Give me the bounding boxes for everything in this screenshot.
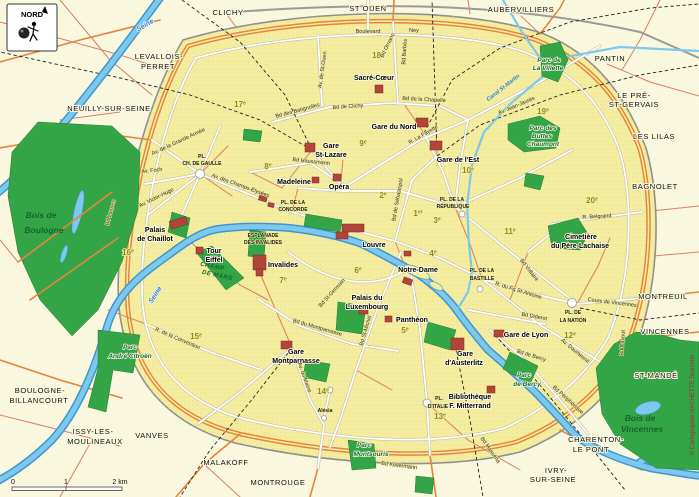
suburb-label-vincennes: VINCENNES xyxy=(640,327,689,336)
street-ney: Ney xyxy=(409,28,419,34)
label-villette-1: Parc de xyxy=(537,57,561,64)
scale-tick-0: 0 xyxy=(11,479,15,486)
label-bois-vincennes-1: Bois de xyxy=(625,413,656,423)
label-buttes-2: Buttes xyxy=(532,133,553,140)
label-st-lazare-1: Gare xyxy=(323,143,339,150)
parc-kellermann xyxy=(415,476,434,494)
label-opera: Opéra xyxy=(329,184,349,191)
label-bercy-2: de Bercy xyxy=(513,381,541,388)
label-republique-1: PL. DE LA xyxy=(440,197,465,203)
label-montsouris-1: Parc xyxy=(357,442,371,449)
label-bastille-1: PL. DE LA xyxy=(470,268,495,274)
suburb-label-vanves: VANVES xyxy=(135,431,168,440)
madeleine-marker xyxy=(312,177,319,183)
suburb-label-issy-2: MOULINEAUX xyxy=(67,437,123,446)
label-bercy-1: Parc xyxy=(517,372,531,379)
suburb-label-boulogne-2: BILLANCOURT xyxy=(10,396,69,405)
scale-tick-1: 1 xyxy=(64,479,68,486)
suburb-label-charenton-2: LE PONT xyxy=(573,445,609,454)
label-bibliotheque-2: F. Mitterrand xyxy=(449,403,491,410)
label-st-lazare-2: St-Lazare xyxy=(315,152,347,159)
place-alesia xyxy=(322,416,327,421)
label-austerlitz-1: Gare xyxy=(457,351,473,358)
label-invalides: Invalides xyxy=(268,262,298,269)
label-esplanade-2: DES INVALIDES xyxy=(244,240,283,246)
compass: NORD xyxy=(7,4,57,51)
label-bois-boulogne-1: Bois de xyxy=(26,210,57,220)
label-bibliotheque-1: Bibliothèque xyxy=(449,394,491,401)
label-chaillot-1: Palais xyxy=(145,227,165,234)
place-etoile xyxy=(196,170,205,179)
map-canvas: CLICHY ST OUEN AUBERVILLIERS PANTIN LE P… xyxy=(0,0,699,497)
place-republique xyxy=(459,211,465,217)
suburb-label-st-ouen: ST OUEN xyxy=(349,4,386,13)
label-pere-lachaise-2: du Père-Lachaise xyxy=(551,243,609,250)
scale-bar-rect xyxy=(12,487,122,491)
label-esplanade-1: ESPLANADE xyxy=(248,233,280,239)
suburb-label-st-mande: ST-MANDÉ xyxy=(634,371,678,380)
label-concorde-1: PL. DE LA xyxy=(281,200,306,206)
label-notre-dame: Notre-Dame xyxy=(398,267,438,274)
label-buttes-3: Chaumont xyxy=(527,141,560,148)
label-chaillot-2: de Chaillot xyxy=(137,236,173,243)
suburb-label-neuilly: NEUILLY-SUR-SEINE xyxy=(67,104,151,113)
gare-austerlitz-marker xyxy=(451,338,464,350)
suburb-label-montrouge: MONTROUGE xyxy=(251,478,306,487)
place-bastille xyxy=(477,286,483,292)
label-alesia: Alésia xyxy=(318,408,333,414)
suburb-label-les-lilas: LES LILAS xyxy=(633,132,675,141)
place-nation xyxy=(568,299,577,308)
label-montsouris-2: Montsouris xyxy=(353,451,388,458)
label-bois-vincennes-2: Vincennes xyxy=(621,424,663,434)
gare-de-l-est-marker xyxy=(430,141,442,150)
hotel-de-ville-marker xyxy=(404,251,411,256)
label-pantheon: Panthéon xyxy=(396,317,428,324)
gare-de-lyon-marker xyxy=(494,330,504,337)
tour-eiffel-marker xyxy=(196,247,203,254)
label-citroen-2: André Citroën xyxy=(107,353,151,360)
suburb-label-malakoff: MALAKOFF xyxy=(203,458,248,467)
label-montparnasse-1: Gare xyxy=(288,349,304,356)
suburb-label-bagnolet: BAGNOLET xyxy=(632,182,678,191)
suburb-label-charenton-1: CHARENTON- xyxy=(568,435,624,444)
suburb-label-aubervilliers: AUBERVILLIERS xyxy=(488,5,554,14)
label-villette-2: La Villette xyxy=(533,65,564,72)
invalides-dome-marker xyxy=(256,269,263,276)
invalides-marker xyxy=(253,255,266,270)
bibliotheque-marker xyxy=(487,386,495,393)
scale-tick-2: 2 km xyxy=(112,479,127,486)
label-buttes-1: Parc des xyxy=(529,125,556,132)
suburb-label-clichy: CLICHY xyxy=(212,8,243,17)
gare-montparnasse-marker xyxy=(281,341,292,349)
gare-st-lazare-marker xyxy=(305,143,315,152)
label-eiffel-1: Tour xyxy=(206,248,221,255)
label-austerlitz-2: d'Austerlitz xyxy=(445,360,483,367)
opera-marker xyxy=(333,174,341,181)
suburb-label-issy-1: ISSY-LES- xyxy=(73,427,114,436)
label-gare-de-l-est: Gare de l'Est xyxy=(437,157,480,164)
suburb-label-boulogne-1: BOULOGNE- xyxy=(15,386,65,395)
label-luxembourg-2: Luxembourg xyxy=(346,304,388,311)
label-nation-1: PL. DE xyxy=(565,310,582,316)
pantheon-marker xyxy=(385,316,392,322)
louvre-marker-2 xyxy=(336,232,348,239)
label-italie-1: PL. xyxy=(435,396,443,402)
suburb-label-ivry-2: SUR-SEINE xyxy=(530,475,576,484)
label-sacre-coeur: Sacré-Cœur xyxy=(354,75,394,82)
label-citroen-1: Parc xyxy=(123,344,137,351)
suburb-label-le-pre-1: LE PRÉ- xyxy=(617,91,650,100)
suburb-label-ivry-1: IVRY- xyxy=(545,466,567,475)
gare-du-nord-marker xyxy=(416,118,428,127)
label-etoile-2: CH. DE GAULLE xyxy=(183,161,223,167)
label-madeleine: Madeleine xyxy=(277,179,311,186)
copyright-text: © Cartographie HACHETTE Tourisme xyxy=(689,354,696,455)
street-boulevard: Boulevard xyxy=(356,29,381,35)
suburb-label-pantin: PANTIN xyxy=(595,54,626,63)
compass-north-label: NORD xyxy=(21,10,44,19)
label-etoile-1: PL. xyxy=(198,154,206,160)
label-gare-du-nord: Gare du Nord xyxy=(372,124,417,131)
suburb-label-levallois-1: LEVALLOIS- xyxy=(135,52,183,61)
label-bois-boulogne-2: Boulogne xyxy=(24,225,63,235)
label-gare-de-lyon: Gare de Lyon xyxy=(504,332,548,339)
suburb-label-le-pre-2: ST-GERVAIS xyxy=(609,100,659,109)
louvre-marker xyxy=(342,224,364,232)
label-pere-lachaise-1: Cimetière xyxy=(565,234,597,241)
label-bastille-2: BASTILLE xyxy=(470,276,495,282)
sacre-coeur-marker xyxy=(375,85,383,93)
label-nation-2: LA NATION xyxy=(560,318,587,324)
suburb-label-montreuil: MONTREUIL xyxy=(638,292,688,301)
label-republique-2: RÉPUBLIQUE xyxy=(437,202,470,210)
label-italie-2: D'ITALIE xyxy=(428,404,449,410)
label-concorde-2: CONCORDE xyxy=(278,207,308,213)
paris-map: CLICHY ST OUEN AUBERVILLIERS PANTIN LE P… xyxy=(0,0,699,497)
parc-monceau xyxy=(243,129,262,142)
label-luxembourg-1: Palais du xyxy=(352,295,383,302)
label-louvre: Louvre xyxy=(362,242,385,249)
suburb-label-levallois-2: PERRET xyxy=(141,62,175,71)
